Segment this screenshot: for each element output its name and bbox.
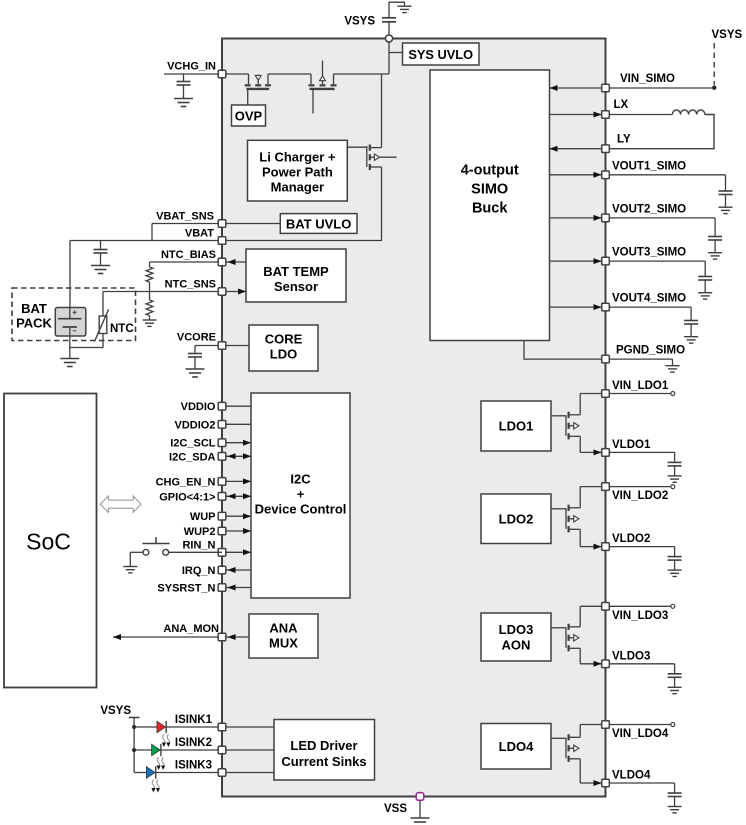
svg-text:VIN_SIMO: VIN_SIMO <box>620 73 675 85</box>
svg-text:LDO1: LDO1 <box>499 419 534 434</box>
svg-text:NTC: NTC <box>110 323 134 335</box>
svg-text:VCORE: VCORE <box>177 332 216 344</box>
svg-text:VOUT2_SIMO: VOUT2_SIMO <box>612 203 686 215</box>
svg-text:VBAT: VBAT <box>185 228 214 240</box>
svg-text:VCHG_IN: VCHG_IN <box>167 61 216 73</box>
svg-text:VDDIO: VDDIO <box>181 401 216 413</box>
svg-text:LX: LX <box>614 99 629 111</box>
svg-text:LED Driver: LED Driver <box>290 738 357 753</box>
svg-text:LDO4: LDO4 <box>499 739 534 754</box>
svg-text:WUP: WUP <box>190 511 216 523</box>
svg-text:AON: AON <box>502 638 531 653</box>
svg-text:BAT UVLO: BAT UVLO <box>286 216 351 231</box>
svg-text:I2C: I2C <box>290 472 311 487</box>
svg-text:ISINK1: ISINK1 <box>175 714 213 726</box>
svg-text:SIMO: SIMO <box>471 182 508 198</box>
svg-text:Sensor: Sensor <box>274 279 318 294</box>
svg-text:ANA_MON: ANA_MON <box>163 623 219 635</box>
svg-text:SYSRST_N: SYSRST_N <box>157 583 215 595</box>
svg-text:VDDIO2: VDDIO2 <box>175 419 216 431</box>
svg-text:+: + <box>297 487 305 502</box>
svg-text:NTC_BIAS: NTC_BIAS <box>161 249 216 261</box>
svg-text:NTC_SNS: NTC_SNS <box>165 279 216 291</box>
svg-text:VLDO3: VLDO3 <box>612 650 650 662</box>
svg-text:Current Sinks: Current Sinks <box>281 754 366 769</box>
svg-text:GPIO<4:1>: GPIO<4:1> <box>159 491 215 503</box>
svg-text:VOUT3_SIMO: VOUT3_SIMO <box>612 247 686 259</box>
svg-text:BAT: BAT <box>21 301 47 316</box>
svg-text:VBAT_SNS: VBAT_SNS <box>156 211 214 223</box>
svg-text:ISINK2: ISINK2 <box>175 737 212 749</box>
svg-text:ISINK3: ISINK3 <box>175 760 212 772</box>
svg-text:SoC: SoC <box>26 529 71 555</box>
svg-text:I2C_SCL: I2C_SCL <box>170 438 216 450</box>
svg-text:VSS: VSS <box>384 803 407 815</box>
svg-text:VIN_LDO4: VIN_LDO4 <box>612 728 669 740</box>
svg-text:VSYS: VSYS <box>100 705 131 717</box>
svg-text:LDO2: LDO2 <box>499 511 534 526</box>
svg-text:CHG_EN_N: CHG_EN_N <box>156 476 216 488</box>
svg-text:Buck: Buck <box>472 201 508 217</box>
svg-text:ANA: ANA <box>269 621 298 636</box>
svg-text:MUX: MUX <box>269 636 298 651</box>
svg-text:LDO3: LDO3 <box>499 622 534 637</box>
svg-text:IRQ_N: IRQ_N <box>182 565 216 577</box>
svg-text:VLDO1: VLDO1 <box>612 439 651 451</box>
svg-text:BAT TEMP: BAT TEMP <box>263 264 329 279</box>
svg-text:PGND_SIMO: PGND_SIMO <box>616 345 685 357</box>
svg-text:Power Path: Power Path <box>262 164 333 179</box>
svg-text:SYS UVLO: SYS UVLO <box>408 47 473 62</box>
svg-text:RIN_N: RIN_N <box>182 539 215 551</box>
svg-text:VLDO2: VLDO2 <box>612 533 650 545</box>
svg-text:VIN_LDO2: VIN_LDO2 <box>612 490 668 502</box>
svg-text:LDO: LDO <box>270 347 297 362</box>
svg-text:CORE: CORE <box>265 332 303 347</box>
svg-text:Device Control: Device Control <box>255 502 347 517</box>
svg-text:VOUT4_SIMO: VOUT4_SIMO <box>612 293 686 305</box>
svg-text:Manager: Manager <box>271 179 324 194</box>
svg-text:LY: LY <box>617 134 631 146</box>
svg-text:Li Charger +: Li Charger + <box>259 149 336 164</box>
svg-text:VLDO4: VLDO4 <box>612 770 651 782</box>
svg-text:VOUT1_SIMO: VOUT1_SIMO <box>612 160 686 172</box>
svg-text:I2C_SDA: I2C_SDA <box>169 451 216 463</box>
svg-text:VSYS: VSYS <box>344 16 375 28</box>
svg-text:VSYS: VSYS <box>712 29 743 41</box>
svg-text:VIN_LDO3: VIN_LDO3 <box>612 610 668 622</box>
svg-text:VIN_LDO1: VIN_LDO1 <box>612 380 669 392</box>
svg-text:4-output: 4-output <box>461 163 519 179</box>
svg-text:WUP2: WUP2 <box>184 526 216 538</box>
svg-text:PACK: PACK <box>16 316 52 331</box>
svg-text:OVP: OVP <box>235 109 263 124</box>
